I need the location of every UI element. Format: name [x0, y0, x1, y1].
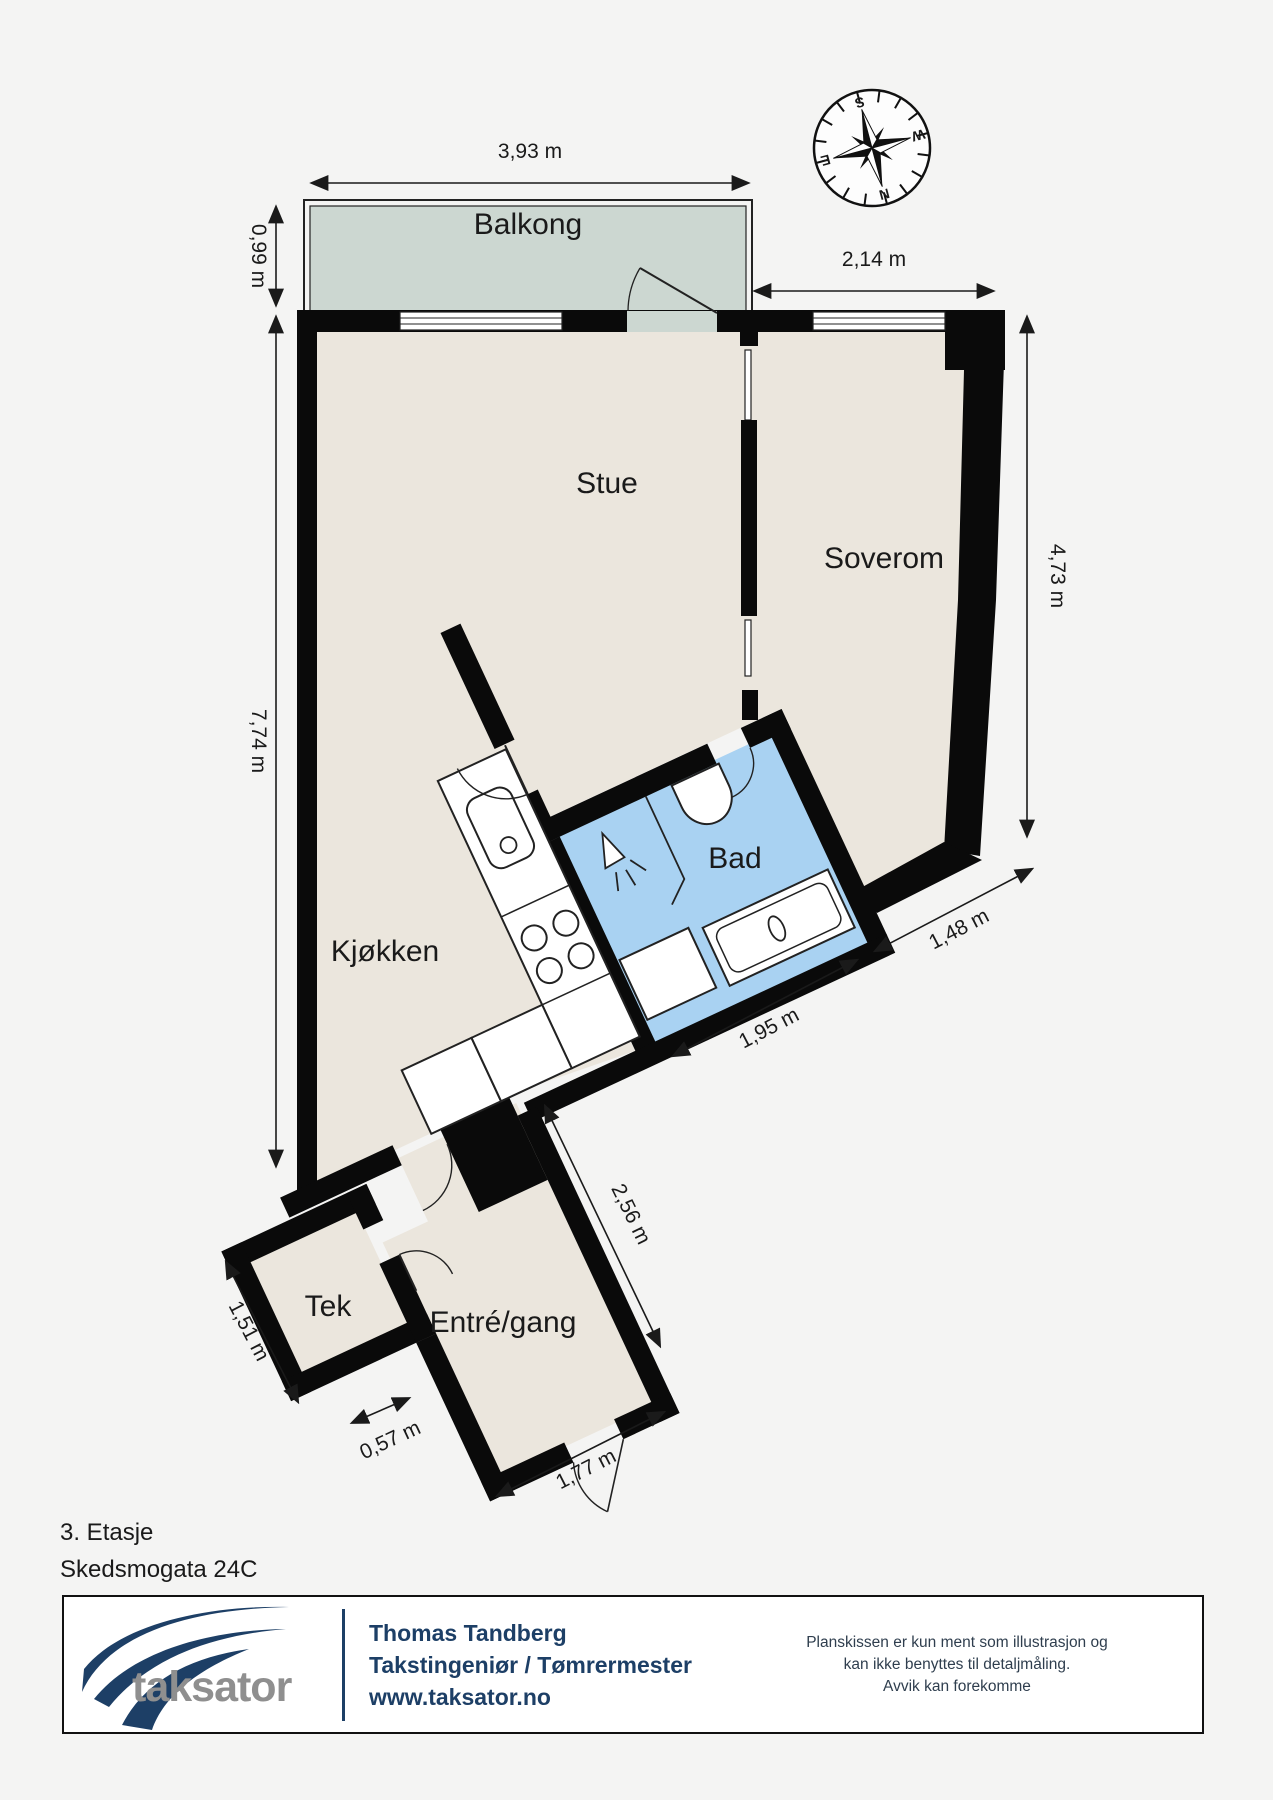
dim-tech-bottom: 0,57 m — [356, 1416, 424, 1464]
living-label: Stue — [576, 467, 638, 500]
taksator-logo: taksator — [64, 1597, 324, 1732]
window-top-right — [813, 312, 945, 330]
address-title: Skedsmogata 24C — [60, 1551, 257, 1588]
window-top-left — [400, 312, 562, 330]
disclaimer-line: Planskissen er kun ment som illustrasjon… — [752, 1632, 1162, 1654]
agent-website[interactable]: www.taksator.no — [369, 1681, 692, 1713]
disclaimer-line: Avvik kan forekomme — [752, 1676, 1162, 1698]
dim-bedroom-right: 4,73 m — [1046, 544, 1069, 608]
dim-hall-right: 2,56 m — [606, 1180, 655, 1248]
entry-label: Entré/gang — [430, 1306, 577, 1339]
agent-name: Thomas Tandberg — [369, 1617, 692, 1649]
bedroom-label: Soverom — [824, 542, 944, 575]
compass-icon: N S E W — [801, 77, 943, 219]
kitchen-label: Kjøkken — [331, 935, 439, 968]
agent-role: Takstingeniør / Tømrermester — [369, 1649, 692, 1681]
logo-wordmark: taksator — [132, 1663, 291, 1712]
footer-divider — [342, 1609, 345, 1721]
floorplan-page: { "title": { "floor": "3. Etasje", "addr… — [0, 0, 1273, 1800]
plan-title: 3. Etasje Skedsmogata 24C — [60, 1514, 257, 1588]
dim-balcony-width: 3,93 m — [498, 140, 562, 163]
dim-bedroom-top: 2,14 m — [842, 248, 906, 271]
dim-left-height: 7,74 m — [247, 709, 270, 773]
floor-title: 3. Etasje — [60, 1514, 257, 1551]
dim-bedroom-diagonal: 1,48 m — [925, 904, 993, 954]
tech-label: Tek — [305, 1290, 353, 1323]
bath-label: Bad — [708, 842, 761, 875]
dim-balcony-depth: 0,99 m — [247, 224, 270, 288]
agent-info: Thomas Tandberg Takstingeniør / Tømrerme… — [369, 1617, 692, 1713]
disclaimer: Planskissen er kun ment som illustrasjon… — [692, 1632, 1202, 1698]
disclaimer-line: kan ikke benyttes til detaljmåling. — [752, 1654, 1162, 1676]
balcony-label: Balkong — [474, 208, 582, 241]
footer: taksator Thomas Tandberg Takstingeniør /… — [62, 1595, 1204, 1734]
